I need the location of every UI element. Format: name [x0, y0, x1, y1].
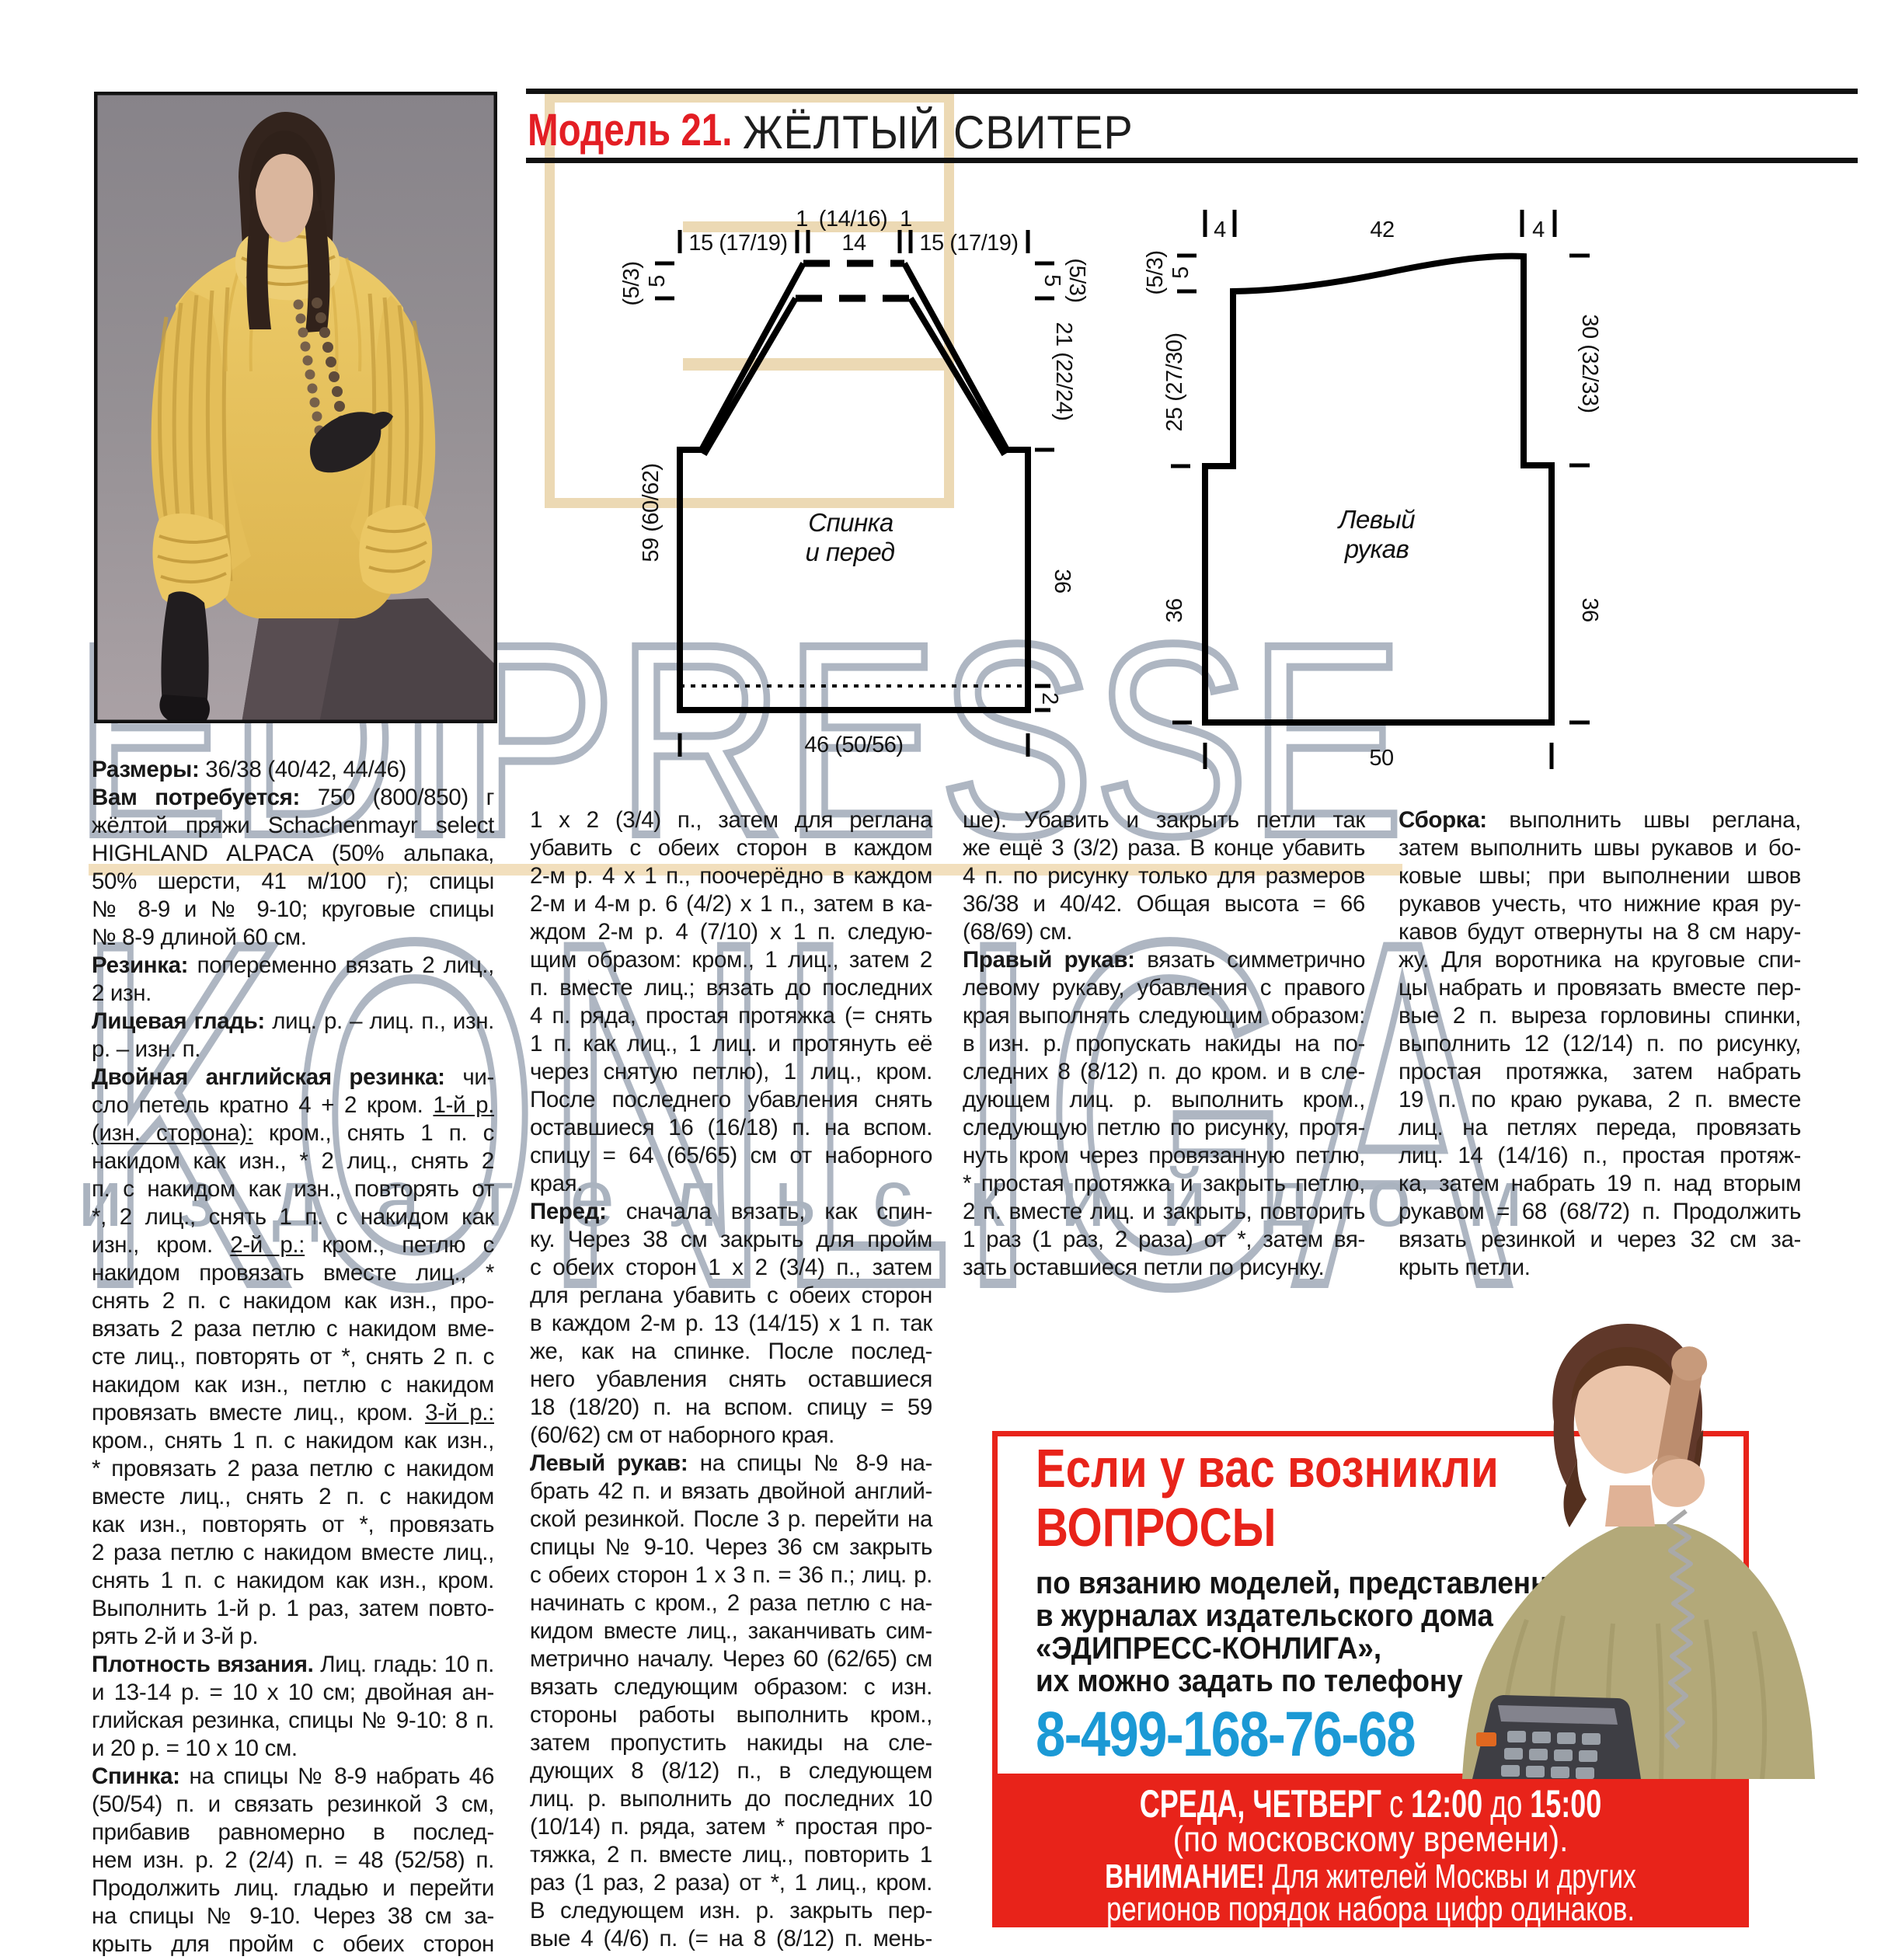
- svg-text:2: 2: [1037, 692, 1062, 705]
- svg-text:1: 1: [796, 207, 808, 232]
- svg-text:30 (32/33): 30 (32/33): [1577, 314, 1602, 413]
- svg-text:25 (27/30): 25 (27/30): [1162, 332, 1187, 431]
- svg-text:15 (17/19): 15 (17/19): [919, 231, 1018, 256]
- svg-text:36: 36: [1577, 597, 1602, 621]
- svg-text:42: 42: [1370, 218, 1394, 242]
- svg-text:1: 1: [900, 207, 912, 232]
- svg-text:36: 36: [1050, 569, 1075, 593]
- svg-text:15 (17/19): 15 (17/19): [688, 231, 787, 256]
- svg-text:46 (50/56): 46 (50/56): [804, 733, 903, 757]
- svg-text:5: 5: [645, 275, 670, 287]
- svg-text:(5/3): (5/3): [1064, 258, 1089, 302]
- svg-text:4: 4: [1532, 218, 1545, 242]
- svg-text:14: 14: [841, 231, 866, 256]
- svg-text:Левый: Левый: [1337, 505, 1415, 534]
- svg-text:рукав: рукав: [1344, 534, 1409, 563]
- svg-text:и перед: и перед: [805, 538, 894, 566]
- svg-text:59 (60/62): 59 (60/62): [639, 463, 664, 562]
- svg-text:(5/3): (5/3): [1143, 250, 1168, 294]
- svg-text:50: 50: [1369, 746, 1393, 771]
- svg-text:Спинка: Спинка: [808, 508, 893, 537]
- svg-text:36: 36: [1162, 598, 1187, 622]
- svg-text:4: 4: [1214, 218, 1226, 242]
- svg-text:21 (22/24): 21 (22/24): [1051, 322, 1076, 420]
- svg-text:(5/3): (5/3): [619, 261, 644, 305]
- svg-text:(14/16): (14/16): [819, 207, 887, 232]
- svg-text:5: 5: [1169, 266, 1193, 279]
- svg-text:5: 5: [1040, 274, 1064, 287]
